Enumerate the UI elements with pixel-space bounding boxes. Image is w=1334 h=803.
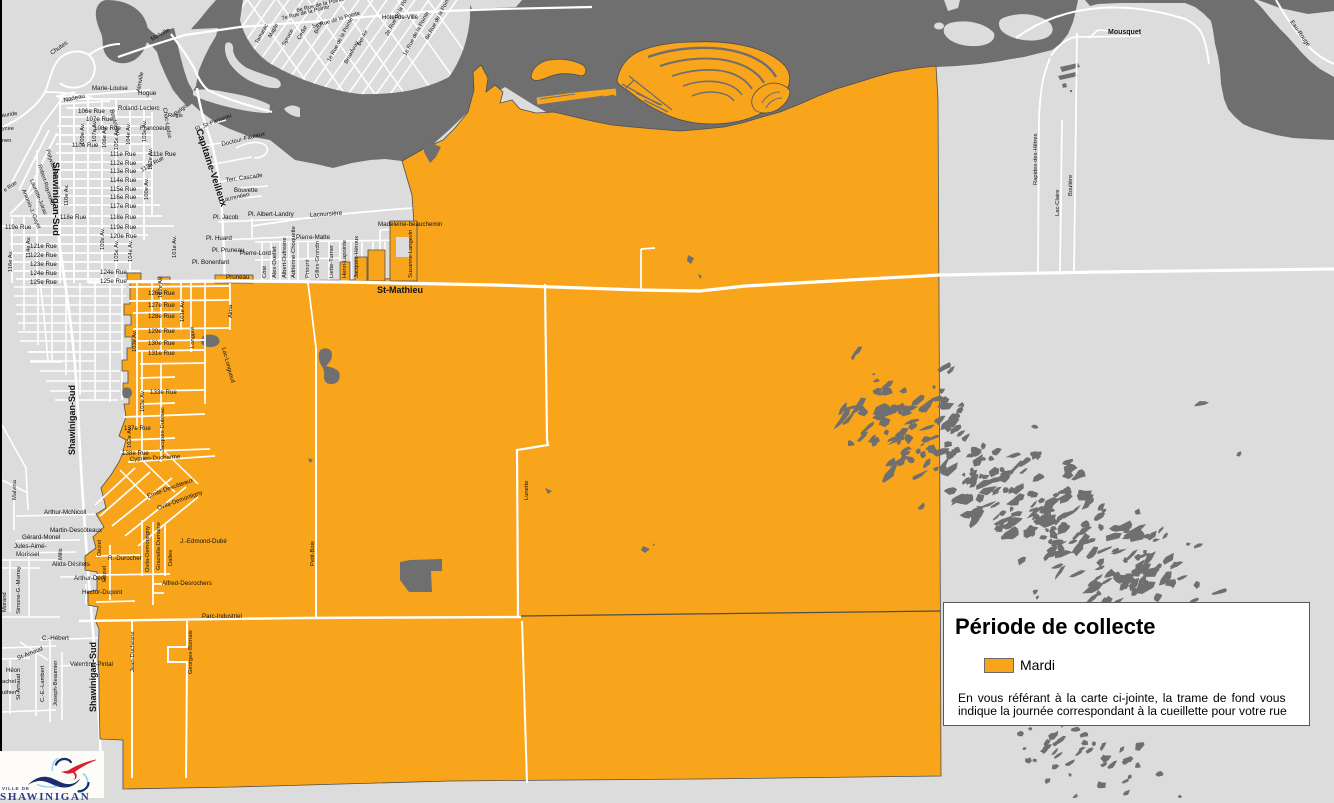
svg-text:102e Av.: 102e Av. [127,426,133,448]
svg-text:Jacques-Héroux: Jacques-Héroux [354,236,360,278]
svg-text:119e Rue: 119e Rue [110,224,137,231]
svg-text:115e Rue: 115e Rue [110,186,137,193]
svg-text:Déziel: Déziel [97,540,103,556]
svg-text:Pierre-Lord: Pierre-Lord [240,250,272,257]
svg-text:122e Rue: 122e Rue [30,252,57,259]
svg-text:100e Av.: 100e Av. [144,178,150,200]
svg-text:Albert-Dufresne: Albert-Dufresne [282,237,288,278]
svg-text:Pruneau: Pruneau [226,274,250,281]
svg-text:Morissel: Morissel [16,551,39,558]
svg-text:105e Av.: 105e Av. [114,240,120,262]
svg-text:Lac-Claire: Lac-Claire [1055,190,1061,216]
svg-text:101e Av.: 101e Av. [180,300,186,322]
svg-text:Adrienne-Choquette: Adrienne-Choquette [291,226,297,278]
svg-text:Hector-Dupont: Hector-Dupont [82,589,123,596]
svg-text:C.-Hébert: C.-Hébert [42,635,69,642]
svg-text:J.-Edmond-Dubé: J.-Edmond-Dubé [180,538,227,545]
svg-text:Joseph-Beaumier: Joseph-Beaumier [53,660,59,706]
svg-text:Gilles-Grondin: Gilles-Grondin [315,241,321,278]
svg-text:118e Rue: 118e Rue [110,214,137,221]
svg-text:110e Av.: 110e Av. [64,184,70,206]
svg-text:114e Av.: 114e Av. [26,236,32,258]
svg-text:ycee: ycee [2,126,14,132]
svg-text:103e Av.: 103e Av. [132,330,138,352]
svg-text:113e Rue: 113e Rue [110,168,137,175]
svg-text:nen: nen [2,138,11,144]
svg-text:Marie-Louise: Marie-Louise [92,85,128,92]
svg-text:111e Rue: 111e Rue [110,151,136,158]
svg-text:128e Rue: 128e Rue [148,313,175,320]
svg-text:119e Rue: 119e Rue [5,224,32,231]
svg-text:Malvina: Malvina [12,479,18,500]
svg-text:109e Av.: 109e Av. [80,123,86,145]
svg-text:Alida-Désilets: Alida-Désilets [52,561,90,568]
svg-text:Héon: Héon [6,668,20,674]
svg-text:124e Rue: 124e Rue [100,269,127,276]
svg-text:Georges-Bornais: Georges-Bornais [188,630,194,674]
svg-text:Gérard-Monel: Gérard-Monel [22,534,60,541]
svg-text:103e Av.: 103e Av. [140,390,146,412]
svg-text:Mills: Mills [58,548,64,560]
svg-text:R.-Durocher: R.-Durocher [108,555,142,562]
svg-text:Boulière: Boulière [1068,175,1074,196]
svg-text:114e Rue: 114e Rue [110,177,137,184]
svg-text:Morand: Morand [2,592,8,612]
svg-text:103e Av.: 103e Av. [142,120,148,142]
svg-text:Martin-Descôteaux: Martin-Descôteaux [50,527,103,534]
svg-text:130e Rue: 130e Rue [148,340,175,347]
svg-text:Pl. Bonenfant: Pl. Bonenfant [192,259,229,266]
svg-text:127e Rue: 127e Rue [148,302,175,309]
svg-text:St-Mathieu: St-Mathieu [377,285,423,295]
svg-text:Suzanne-Langevin: Suzanne-Langevin [408,230,414,278]
svg-text:Henri-Lapointe: Henri-Lapointe [342,240,348,278]
svg-text:Côté: Côté [262,266,268,278]
svg-text:Petit-Bois: Petit-Bois [310,541,316,566]
svg-text:123e Rue: 123e Rue [30,261,57,268]
svg-text:Longpré: Longpré [190,327,196,348]
svg-text:Liette-Turner: Liette-Turner [329,245,335,278]
svg-text:Lunette: Lunette [524,481,530,500]
svg-text:Pl. Jacob: Pl. Jacob [213,214,239,221]
svg-text:133e Rue: 133e Rue [150,389,177,396]
svg-text:Pl. Huard: Pl. Huard [206,235,232,242]
svg-text:Jean-Duchesne: Jean-Duchesne [130,631,136,672]
svg-text:107e Av.: 107e Av. [92,120,98,142]
svg-text:129e Rue: 129e Rue [148,328,175,335]
svg-text:Alex-Ouellet: Alex-Ouellet [272,246,278,278]
svg-text:Alfred-Desrochers: Alfred-Desrochers [162,580,212,587]
svg-text:Madeleine-beauchemin: Madeleine-beauchemin [378,221,443,228]
svg-text:Pierre-Matte: Pierre-Matte [296,234,331,241]
svg-text:117e Rue: 117e Rue [110,203,137,210]
svg-text:Dalles: Dalles [168,550,174,566]
svg-text:uthier: uthier [2,690,17,696]
svg-text:Arthur-McNicoll: Arthur-McNicoll [44,509,86,516]
svg-text:107e Rue: 107e Rue [86,116,113,123]
svg-text:Jules-Aimé-: Jules-Aimé- [14,543,47,550]
svg-text:Alma: Alma [228,304,234,318]
svg-text:104e Av.: 104e Av. [128,240,134,262]
svg-text:Graziella-Dumaine: Graziella-Dumaine [156,522,162,570]
svg-text:118e Rue: 118e Rue [60,214,87,221]
svg-text:Shawinigan-Sud: Shawinigan-Sud [88,642,98,712]
svg-text:121e Rue: 121e Rue [30,243,57,250]
svg-text:Prieuré: Prieuré [305,259,311,278]
svg-text:126e Rue: 126e Rue [148,290,175,297]
svg-text:116e Rue: 116e Rue [110,194,137,201]
svg-text:106e Rue: 106e Rue [78,108,105,115]
svg-text:Roland-Leclerc: Roland-Leclerc [118,105,160,112]
svg-text:Jacques-Dutrisac: Jacques-Dutrisac [160,407,166,452]
svg-text:106e Av.: 106e Av. [102,126,108,148]
svg-text:124e Rue: 124e Rue [30,270,57,277]
svg-text:105e Av.: 105e Av. [114,128,120,150]
svg-text:109e Av.: 109e Av. [100,228,106,250]
svg-text:Valentine-Pintal: Valentine-Pintal [70,661,113,668]
svg-text:Mousquet: Mousquet [1108,29,1142,36]
svg-text:112e Rue: 112e Rue [110,160,137,167]
svg-text:131e Rue: 131e Rue [148,350,175,357]
svg-text:116e Av.: 116e Av. [8,250,14,272]
svg-text:125e Rue: 125e Rue [100,278,127,285]
svg-text:104e Av.: 104e Av. [126,123,132,145]
svg-text:Déziel: Déziel [102,566,108,582]
svg-text:102e Av.: 102e Av. [148,148,154,170]
svg-text:achel: achel [2,679,16,685]
svg-text:C.-E.-Lambert: C.-E.-Lambert [40,665,46,702]
svg-text:Hôtel-de-Ville: Hôtel-de-Ville [382,15,419,21]
svg-text:120e Rue: 120e Rue [110,233,137,240]
svg-text:Simone-G.-Murray: Simone-G.-Murray [16,566,22,614]
svg-text:Ovila-Demontigny: Ovila-Demontigny [145,526,151,572]
svg-text:Rapides-des-Hêtres: Rapides-des-Hêtres [1033,133,1039,185]
svg-text:125e Rue: 125e Rue [30,279,57,286]
svg-text:Shawinigan-Sud: Shawinigan-Sud [67,385,77,455]
svg-text:St-Arnaud: St-Arnaud [16,674,22,700]
svg-text:101e Av.: 101e Av. [172,236,178,258]
svg-text:Parc-Industriel: Parc-Industriel [202,613,242,620]
svg-text:Pl. Albert-Landry: Pl. Albert-Landry [248,211,295,218]
